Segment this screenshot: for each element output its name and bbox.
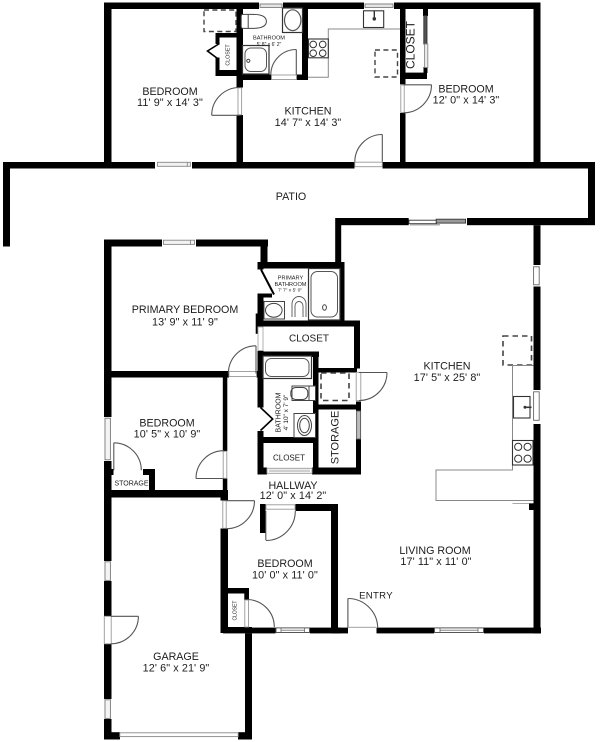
svg-text:12' 6" x 21' 9": 12' 6" x 21' 9" [143, 663, 210, 675]
svg-text:CLOSET: CLOSET [226, 44, 232, 66]
svg-text:12' 0" x 14' 3": 12' 0" x 14' 3" [433, 95, 500, 107]
svg-text:PRIMARY: PRIMARY [278, 276, 304, 282]
svg-text:BEDROOM: BEDROOM [257, 558, 312, 570]
svg-text:STORAGE: STORAGE [330, 411, 342, 465]
svg-text:KITCHEN: KITCHEN [424, 361, 471, 373]
svg-text:CLOSET: CLOSET [273, 454, 305, 463]
svg-text:7' 7" x 5' 0": 7' 7" x 5' 0" [278, 287, 302, 293]
svg-text:5' 8" x 6' 2": 5' 8" x 6' 2" [257, 42, 282, 48]
svg-text:17' 5" x 25' 8": 17' 5" x 25' 8" [414, 372, 481, 384]
svg-text:STORAGE: STORAGE [114, 481, 148, 488]
svg-text:CLOSET: CLOSET [404, 20, 418, 69]
svg-text:14' 7" x 14' 3": 14' 7" x 14' 3" [275, 117, 342, 129]
svg-text:GARAGE: GARAGE [153, 651, 199, 663]
svg-text:10' 0" x 11' 0": 10' 0" x 11' 0" [252, 570, 318, 582]
svg-text:17' 11" x 11' 0": 17' 11" x 11' 0" [400, 556, 471, 568]
svg-text:13' 9" x 11' 9": 13' 9" x 11' 9" [152, 317, 218, 329]
svg-text:KITCHEN: KITCHEN [285, 106, 332, 118]
svg-text:BATHROOM: BATHROOM [276, 392, 283, 432]
svg-text:10' 5" x 10' 9": 10' 5" x 10' 9" [134, 429, 201, 441]
svg-text:4' 10" x 7' 9": 4' 10" x 7' 9" [283, 394, 290, 430]
svg-text:CLOSET: CLOSET [233, 600, 239, 620]
svg-text:PATIO: PATIO [276, 191, 306, 203]
svg-text:BATHROOM: BATHROOM [253, 36, 285, 42]
svg-text:ENTRY: ENTRY [359, 591, 393, 602]
svg-text:BATHROOM: BATHROOM [275, 282, 307, 288]
svg-text:CLOSET: CLOSET [289, 334, 329, 345]
svg-text:11' 9" x 14' 3": 11' 9" x 14' 3" [137, 97, 203, 109]
svg-text:PRIMARY BEDROOM: PRIMARY BEDROOM [132, 304, 239, 316]
svg-text:12' 0" x 14' 2": 12' 0" x 14' 2" [260, 490, 327, 502]
